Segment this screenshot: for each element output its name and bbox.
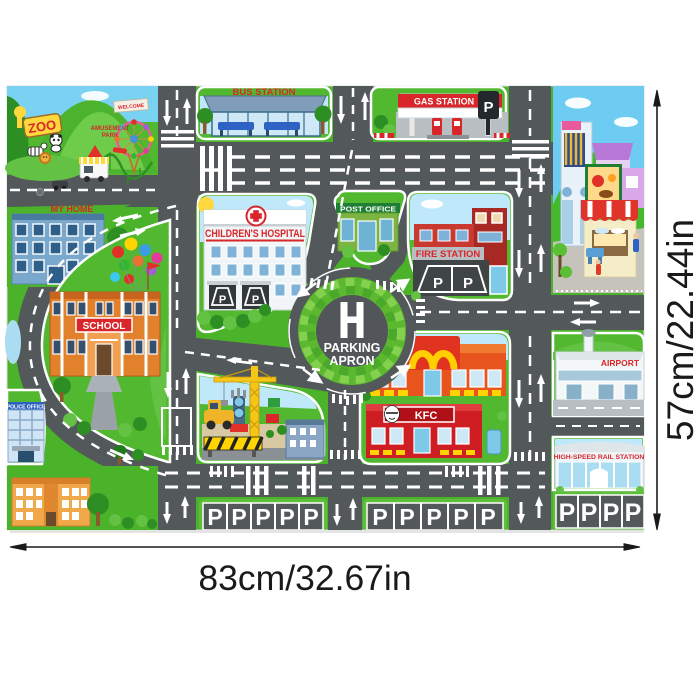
- svg-text:SCHOOL: SCHOOL: [83, 321, 126, 332]
- svg-text:PARK: PARK: [102, 133, 119, 139]
- svg-text:83cm/32.67in: 83cm/32.67in: [198, 558, 411, 598]
- svg-text:FIRE STATION: FIRE STATION: [416, 249, 481, 260]
- svg-text:P: P: [255, 504, 270, 530]
- svg-text:PARKING: PARKING: [324, 341, 381, 355]
- svg-text:GAS STATION: GAS STATION: [414, 97, 474, 107]
- svg-text:P: P: [453, 504, 468, 530]
- svg-text:P: P: [426, 504, 441, 530]
- svg-text:P: P: [581, 499, 598, 527]
- svg-text:CHILDREN'S HOSPITAL: CHILDREN'S HOSPITAL: [205, 228, 305, 240]
- svg-text:P: P: [603, 499, 620, 527]
- svg-text:P: P: [252, 294, 259, 306]
- svg-text:P: P: [399, 504, 414, 530]
- svg-text:POST OFFICE: POST OFFICE: [340, 205, 396, 214]
- svg-text:APRON: APRON: [329, 354, 374, 368]
- svg-text:P: P: [463, 275, 473, 292]
- svg-text:P: P: [483, 99, 493, 116]
- svg-text:P: P: [433, 275, 443, 292]
- svg-text:P: P: [372, 504, 387, 530]
- svg-text:HIGH-SPEED RAIL STATION: HIGH-SPEED RAIL STATION: [554, 454, 645, 461]
- svg-text:P: P: [279, 504, 294, 530]
- svg-text:AIRPORT: AIRPORT: [601, 358, 640, 368]
- svg-text:57cm/22.44in: 57cm/22.44in: [660, 219, 700, 441]
- svg-text:P: P: [219, 294, 226, 306]
- svg-text:P: P: [625, 499, 642, 527]
- svg-text:P: P: [303, 504, 318, 530]
- svg-text:MY HOME: MY HOME: [51, 204, 94, 214]
- svg-text:AMUSEMENT: AMUSEMENT: [91, 126, 130, 132]
- svg-text:P: P: [559, 499, 576, 527]
- svg-text:P: P: [480, 504, 495, 530]
- svg-text:KFC: KFC: [415, 410, 438, 422]
- svg-text:P: P: [231, 504, 246, 530]
- svg-text:P: P: [207, 504, 222, 530]
